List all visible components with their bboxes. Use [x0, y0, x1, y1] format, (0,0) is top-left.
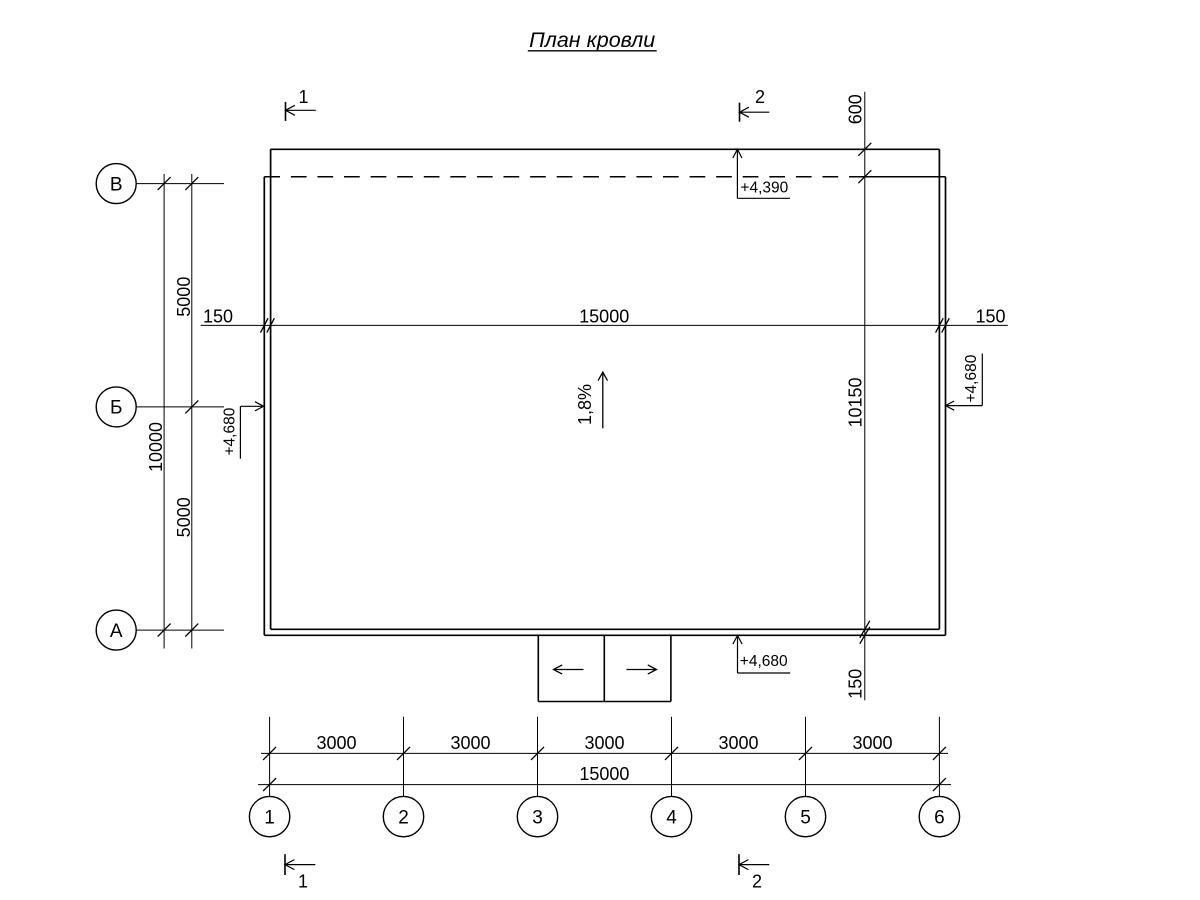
svg-text:Б: Б — [110, 398, 122, 419]
svg-text:1: 1 — [298, 872, 308, 892]
svg-text:1: 1 — [298, 87, 308, 107]
svg-text:2: 2 — [755, 87, 765, 107]
svg-text:+4,680: +4,680 — [221, 407, 238, 455]
svg-text:5000: 5000 — [174, 497, 194, 537]
svg-text:1: 1 — [264, 808, 275, 829]
svg-text:В: В — [110, 174, 123, 195]
svg-text:150: 150 — [845, 669, 865, 699]
svg-text:150: 150 — [975, 306, 1005, 326]
svg-text:+4,390: +4,390 — [740, 180, 788, 197]
svg-text:600: 600 — [845, 94, 865, 124]
svg-text:3000: 3000 — [584, 733, 624, 753]
svg-text:15000: 15000 — [579, 764, 629, 784]
svg-text:+4,680: +4,680 — [963, 354, 980, 402]
svg-text:2: 2 — [398, 808, 409, 829]
svg-text:2: 2 — [752, 872, 762, 892]
svg-text:3000: 3000 — [852, 733, 892, 753]
svg-text:10000: 10000 — [146, 422, 166, 472]
svg-text:+4,680: +4,680 — [740, 653, 788, 670]
svg-text:10150: 10150 — [845, 377, 865, 427]
svg-text:4: 4 — [666, 808, 677, 829]
svg-text:А: А — [110, 621, 123, 642]
svg-text:План кровли: План кровли — [529, 28, 655, 52]
svg-text:15000: 15000 — [579, 307, 629, 327]
svg-text:3000: 3000 — [316, 733, 356, 753]
svg-text:3: 3 — [532, 808, 543, 829]
svg-text:6: 6 — [934, 808, 945, 829]
svg-text:3000: 3000 — [450, 733, 490, 753]
svg-text:1,8%: 1,8% — [575, 384, 595, 425]
svg-text:5000: 5000 — [174, 277, 194, 317]
svg-text:5: 5 — [800, 808, 811, 829]
svg-text:150: 150 — [203, 306, 233, 326]
svg-text:3000: 3000 — [718, 733, 758, 753]
